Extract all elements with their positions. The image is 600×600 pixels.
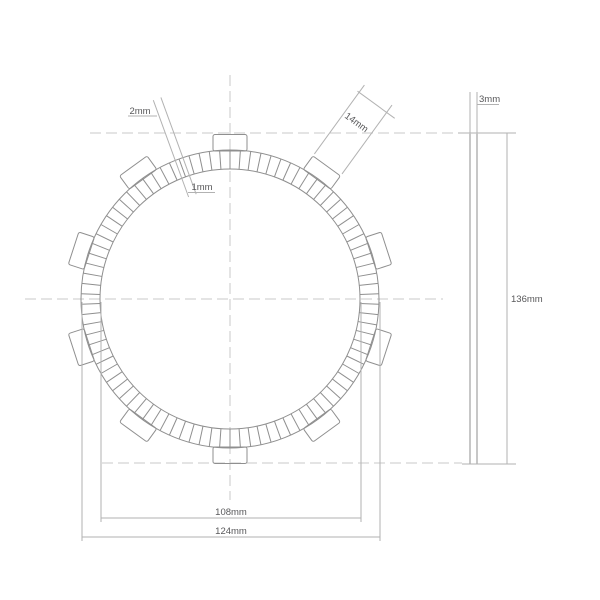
friction-pad-groove: [106, 372, 122, 383]
friction-pad-groove: [266, 424, 271, 442]
friction-pad-groove: [101, 225, 117, 235]
friction-pad-groove: [257, 426, 261, 445]
friction-pad-groove: [220, 429, 221, 448]
drawing-canvas: 2mm 1mm 14mm 3mm 136mm 1: [0, 0, 600, 600]
friction-pad-groove: [151, 409, 161, 425]
dimension-annotations: 2mm 1mm 14mm 3mm 136mm 1: [82, 85, 543, 541]
friction-pad-groove: [360, 294, 379, 295]
friction-pad-groove: [113, 379, 128, 391]
friction-pad-groove: [85, 263, 103, 268]
friction-pad-groove: [160, 414, 169, 431]
friction-pad-groove: [351, 243, 369, 250]
dim-overall-diameter: 136mm: [458, 133, 543, 464]
friction-pad-groove: [127, 192, 140, 206]
friction-pad-groove: [199, 426, 203, 445]
friction-pad-groove: [81, 304, 100, 305]
dim-groove-inner: 1mm: [188, 182, 215, 193]
friction-pad-groove: [189, 156, 194, 174]
friction-pad-groove: [134, 399, 146, 414]
friction-pad-groove: [358, 273, 377, 276]
friction-pad-groove: [314, 185, 326, 200]
friction-pad-groove: [127, 393, 140, 407]
groove-inner-label: 1mm: [191, 182, 212, 193]
friction-pad-groove: [327, 199, 341, 212]
friction-pad-groove: [356, 263, 374, 268]
dim-tab-width: 14mm: [314, 85, 394, 174]
friction-pad-groove: [239, 150, 240, 169]
friction-pad-groove: [220, 150, 221, 169]
friction-pad-groove: [199, 153, 203, 172]
friction-pad-groove: [359, 313, 378, 315]
friction-pad-groove: [351, 348, 369, 355]
friction-pad-groove: [248, 151, 251, 170]
friction-pad-groove: [88, 253, 106, 259]
friction-pad-groove: [248, 428, 251, 447]
friction-pad-groove: [354, 339, 372, 345]
friction-pad-groove: [320, 192, 333, 206]
friction-pad-groove: [356, 330, 374, 335]
dim-outer-diameter: 124mm: [82, 302, 380, 541]
friction-pad-groove: [306, 178, 317, 193]
friction-pad-groove: [332, 207, 347, 219]
friction-pad-groove: [83, 273, 102, 276]
friction-pad-groove: [239, 429, 240, 448]
friction-pad-groove: [113, 207, 128, 219]
thickness-label: 3mm: [479, 94, 500, 105]
friction-pad-groove: [332, 379, 347, 391]
friction-pad-groove: [343, 225, 359, 235]
friction-pad-groove: [314, 399, 326, 414]
friction-pad-groove: [338, 372, 354, 383]
friction-pad-groove: [347, 234, 364, 242]
clutch-disc-technical-drawing: 2mm 1mm 14mm 3mm 136mm 1: [0, 0, 600, 600]
friction-pad-groove: [359, 283, 378, 285]
friction-pad-groove: [320, 393, 333, 407]
dim-inner-diameter: 108mm: [101, 302, 361, 522]
friction-pad-groove: [151, 173, 161, 189]
friction-pad-groove: [96, 234, 113, 242]
friction-pad-groove: [106, 216, 122, 227]
friction-pad-groove: [360, 304, 379, 305]
friction-pad-groove: [142, 404, 153, 419]
outer-diameter-label: 124mm: [215, 526, 247, 537]
friction-pad-groove: [209, 428, 212, 447]
dim-thickness: 3mm: [470, 92, 500, 134]
friction-pad-groove: [283, 163, 291, 180]
friction-pad-groove: [274, 159, 281, 177]
overall-diameter-label: 136mm: [511, 294, 543, 305]
friction-pad-groove: [134, 185, 146, 200]
friction-pad-groove: [209, 151, 212, 170]
friction-pad-groove: [274, 421, 281, 439]
friction-pad-groove: [119, 386, 133, 399]
friction-pad-groove: [82, 283, 101, 285]
centerlines: [25, 75, 462, 500]
inner-diameter-label: 108mm: [215, 507, 247, 518]
side-view-plate: [470, 133, 477, 464]
friction-pad-groove: [169, 418, 177, 435]
friction-pad-groove: [101, 364, 117, 374]
friction-pad-groove: [291, 414, 300, 431]
friction-pad-groove: [179, 421, 186, 439]
groove-outer-label: 2mm: [129, 106, 150, 117]
tab-dimension-line: [358, 91, 395, 118]
friction-pad-groove: [283, 418, 291, 435]
friction-pad-groove: [160, 167, 169, 184]
groove-extension-line-a: [153, 100, 188, 197]
friction-pad-groove: [306, 404, 317, 419]
friction-pad-groove: [299, 409, 309, 425]
friction-pad-groove: [88, 339, 106, 345]
friction-pad-groove: [119, 199, 133, 212]
plate-side-profile: [470, 133, 477, 464]
friction-pad-groove: [169, 163, 177, 180]
friction-pad-groove: [266, 156, 271, 174]
friction-pad-groove: [354, 253, 372, 259]
friction-pad-groove: [327, 386, 341, 399]
friction-pad-groove: [257, 153, 261, 172]
friction-pad-groove: [343, 364, 359, 374]
friction-pad-groove: [299, 173, 309, 189]
tab-width-label: 14mm: [342, 111, 370, 135]
friction-pad-groove: [142, 178, 153, 193]
friction-pad-groove: [291, 167, 300, 184]
friction-pad-groove: [338, 216, 354, 227]
friction-pad-groove: [189, 424, 194, 442]
friction-pad-groove: [83, 322, 102, 325]
friction-pad-groove: [81, 294, 100, 295]
friction-pad-groove: [96, 356, 113, 364]
friction-pad-groove: [82, 313, 101, 315]
friction-pad-groove: [92, 243, 110, 250]
